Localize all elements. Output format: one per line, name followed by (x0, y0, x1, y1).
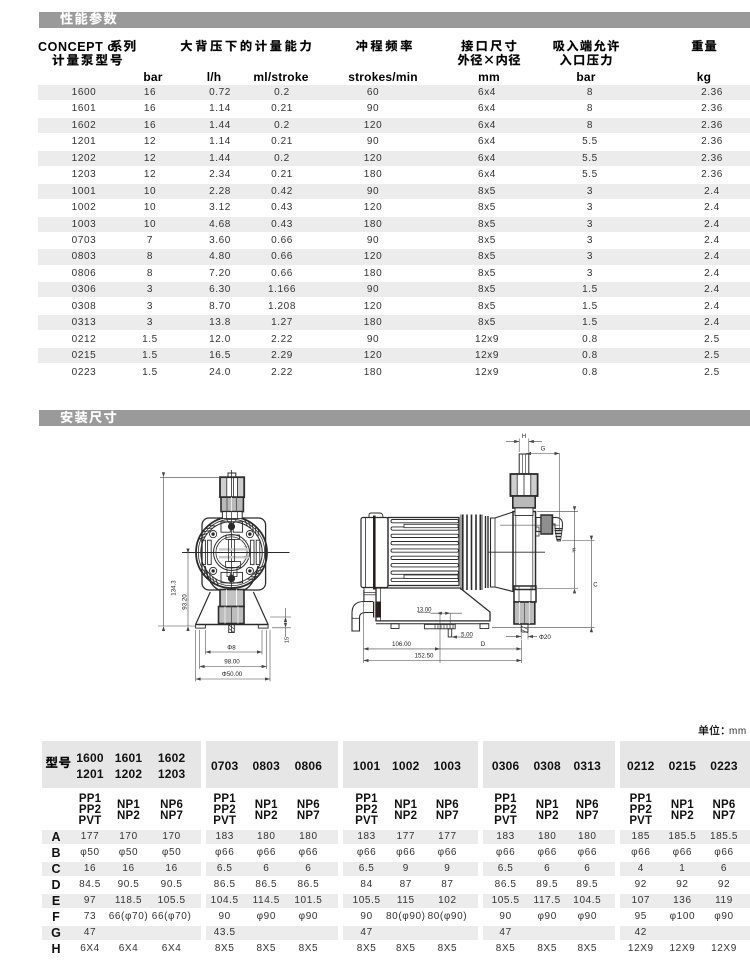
svg-text:G: G (541, 447, 546, 453)
svg-text:134.3: 134.3 (171, 580, 178, 596)
svg-text:H: H (522, 434, 526, 440)
svg-text:F: F (572, 549, 576, 555)
svg-text:5.00: 5.00 (461, 632, 473, 638)
svg-text:15: 15 (285, 637, 291, 643)
svg-text:13.00: 13.00 (416, 607, 432, 613)
svg-text:152.50: 152.50 (415, 653, 434, 660)
svg-text:C: C (593, 583, 598, 589)
svg-text:Φ8: Φ8 (227, 645, 236, 652)
svg-text:106.00: 106.00 (392, 641, 411, 648)
svg-text:Φ50.00: Φ50.00 (222, 671, 243, 678)
svg-text:98.00: 98.00 (224, 659, 240, 666)
svg-text:D: D (481, 641, 486, 648)
svg-text:93.20: 93.20 (182, 594, 189, 610)
svg-text:Φ20: Φ20 (539, 634, 551, 641)
